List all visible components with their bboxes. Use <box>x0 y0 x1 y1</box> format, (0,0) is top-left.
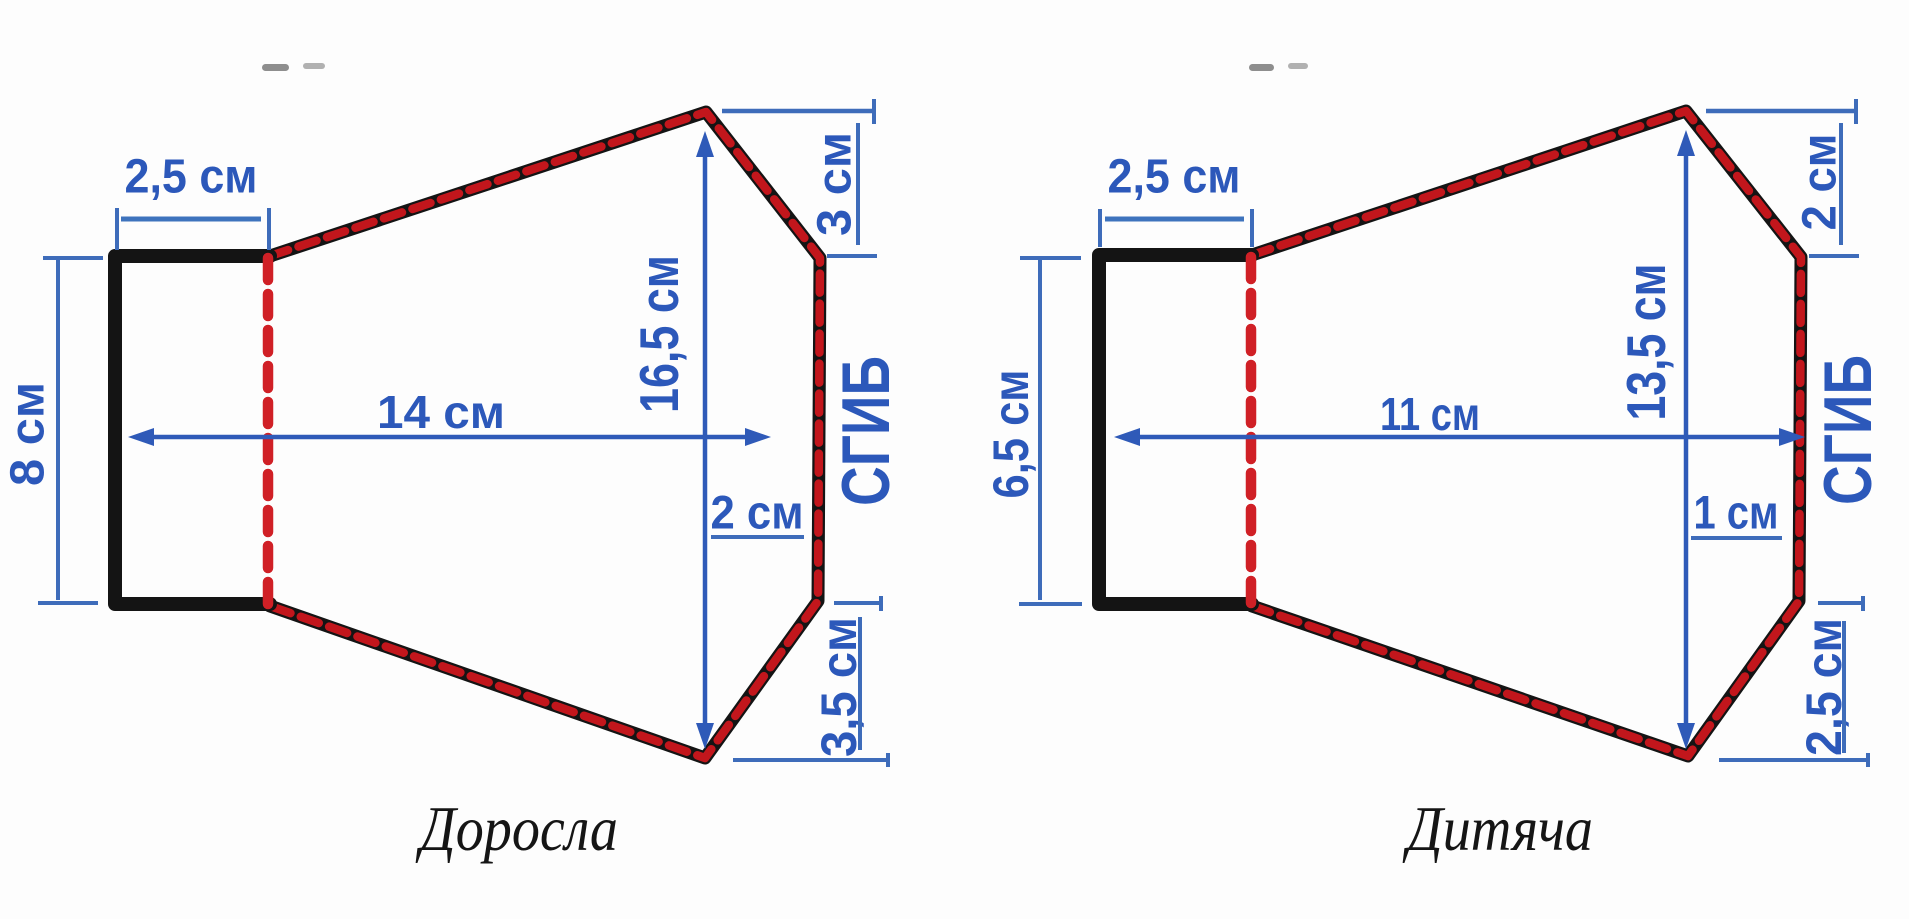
svg-text:2,5 см: 2,5 см <box>125 151 258 204</box>
svg-text:СГИБ: СГИБ <box>1810 355 1886 505</box>
svg-text:СГИБ: СГИБ <box>828 356 904 506</box>
svg-text:6,5 см: 6,5 см <box>983 370 1039 499</box>
svg-text:2 см: 2 см <box>711 486 804 539</box>
svg-text:14 см: 14 см <box>377 386 505 438</box>
svg-text:2,5 см: 2,5 см <box>1108 151 1241 204</box>
svg-text:Дитяча: Дитяча <box>1403 794 1593 864</box>
svg-text:8 см: 8 см <box>2 382 55 486</box>
svg-text:13,5 см: 13,5 см <box>1615 264 1677 421</box>
svg-text:Доросла: Доросла <box>416 794 618 864</box>
svg-text:3 см: 3 см <box>809 132 862 236</box>
svg-text:1 см: 1 см <box>1694 486 1779 539</box>
svg-text:16,5 см: 16,5 см <box>628 255 690 413</box>
svg-text:2 см: 2 см <box>1794 134 1847 231</box>
svg-text:11 см: 11 см <box>1380 388 1480 440</box>
